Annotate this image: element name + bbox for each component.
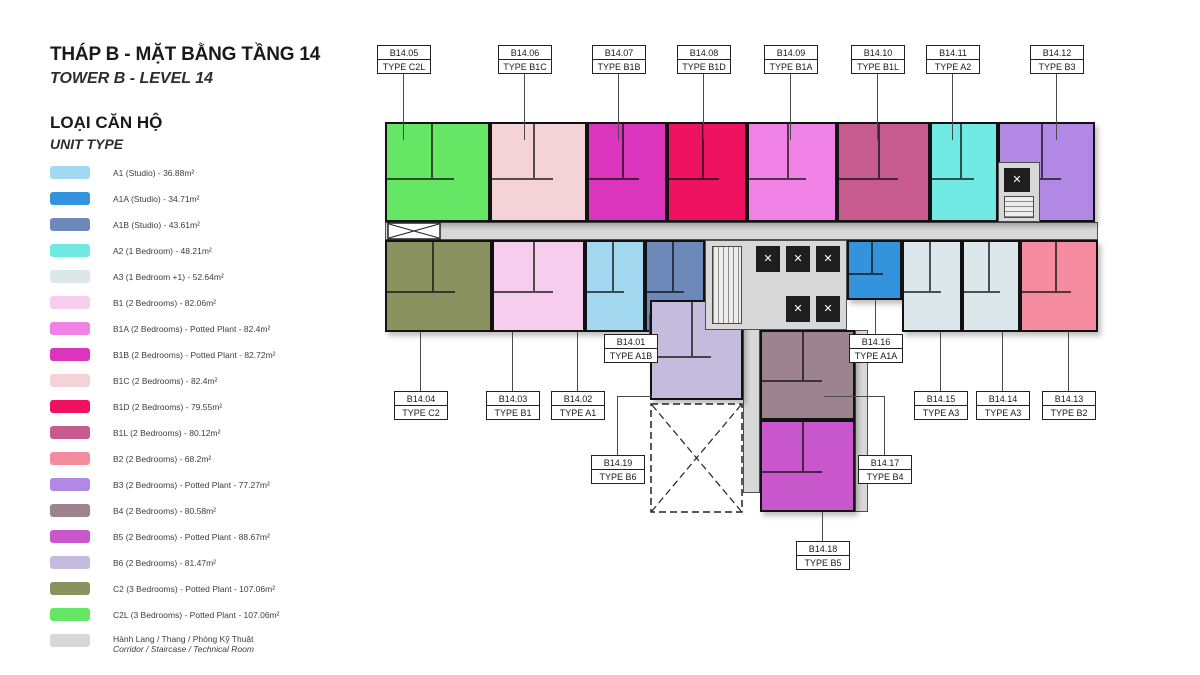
unit-area-B14.15 xyxy=(902,240,962,332)
unit-type: TYPE C2 xyxy=(395,406,447,419)
unit-type: TYPE A2 xyxy=(927,60,979,73)
elevator-shaft: ✕ xyxy=(816,296,840,322)
callout-B14.06: B14.06TYPE B1C xyxy=(498,45,552,74)
leader-line xyxy=(512,332,513,391)
unit-id: B14.05 xyxy=(378,46,430,60)
legend-item-corridor: Hành Lang / Thang / Phòng Kỹ Thuật Corri… xyxy=(50,634,279,656)
legend-swatch-A3 xyxy=(50,270,90,283)
leader-line xyxy=(940,332,941,391)
legend-swatch-corridor xyxy=(50,634,90,647)
callout-B14.15: B14.15TYPE A3 xyxy=(914,391,968,420)
callout-B14.17: B14.17TYPE B4 xyxy=(858,455,912,484)
legend-swatch-B1B xyxy=(50,348,90,361)
unit-type: TYPE A3 xyxy=(977,406,1029,419)
legend-label: B4 (2 Bedrooms) - 80.58m² xyxy=(113,506,216,516)
legend-item: A2 (1 Bedroom) - 48.21m² xyxy=(50,244,279,257)
legend-item: A1A (Studio) - 34.71m² xyxy=(50,192,279,205)
leader-line xyxy=(649,314,650,334)
unit-area-B14.04 xyxy=(385,240,492,332)
legend-label-en: Corridor / Staircase / Technical Room xyxy=(113,644,254,654)
legend-label: A2 (1 Bedroom) - 48.21m² xyxy=(113,246,212,256)
unit-id: B14.18 xyxy=(797,542,849,556)
unit-type: TYPE A1A xyxy=(850,349,902,362)
legend-label: A1B (Studio) - 43.61m² xyxy=(113,220,200,230)
legend-label: B1A (2 Bedrooms) - Potted Plant - 82.4m² xyxy=(113,324,270,334)
unit-id: B14.11 xyxy=(927,46,979,60)
callout-B14.19: B14.19TYPE B6 xyxy=(591,455,645,484)
leader-line xyxy=(524,69,525,140)
unit-type: TYPE B1B xyxy=(593,60,645,73)
legend-item: B1D (2 Bedrooms) - 79.55m² xyxy=(50,400,279,413)
leader-line xyxy=(952,69,953,140)
callout-B14.16: B14.16TYPE A1A xyxy=(849,334,903,363)
unit-area-B14.02 xyxy=(585,240,645,332)
legend-item: B1B (2 Bedrooms) - Potted Plant - 82.72m… xyxy=(50,348,279,361)
legend-item: A3 (1 Bedroom +1) - 52.64m² xyxy=(50,270,279,283)
legend-swatch-B1C xyxy=(50,374,90,387)
legend-item: B4 (2 Bedrooms) - 80.58m² xyxy=(50,504,279,517)
leader-line xyxy=(1068,332,1069,391)
legend-swatch-B2 xyxy=(50,452,90,465)
legend-label: C2 (3 Bedrooms) - Potted Plant - 107.06m… xyxy=(113,584,275,594)
legend-label: B5 (2 Bedrooms) - Potted Plant - 88.67m² xyxy=(113,532,270,542)
legend-item: B6 (2 Bedrooms) - 81.47m² xyxy=(50,556,279,569)
callout-B14.01: B14.01TYPE A1B xyxy=(604,334,658,363)
unit-area-B14.13 xyxy=(1020,240,1098,332)
legend-swatch-B3 xyxy=(50,478,90,491)
callout-B14.11: B14.11TYPE A2 xyxy=(926,45,980,74)
elevator-shaft: ✕ xyxy=(816,246,840,272)
legend-label: B3 (2 Bedrooms) - Potted Plant - 77.27m² xyxy=(113,480,270,490)
unit-type: TYPE A1 xyxy=(552,406,604,419)
legend-item: B2 (2 Bedrooms) - 68.2m² xyxy=(50,452,279,465)
staircase xyxy=(1004,196,1034,218)
unit-id: B14.10 xyxy=(852,46,904,60)
leader-line xyxy=(884,396,885,455)
legend-label: B1D (2 Bedrooms) - 79.55m² xyxy=(113,402,222,412)
legend-swatch-C2 xyxy=(50,582,90,595)
leader-line xyxy=(618,69,619,140)
unit-type: TYPE B6 xyxy=(592,470,644,483)
leader-line xyxy=(577,332,578,391)
unit-type: TYPE B2 xyxy=(1043,406,1095,419)
legend-item: B1 (2 Bedrooms) - 82.06m² xyxy=(50,296,279,309)
legend-label: A1 (Studio) - 36.88m² xyxy=(113,168,194,178)
unit-type: TYPE B1L xyxy=(852,60,904,73)
unit-id: B14.08 xyxy=(678,46,730,60)
legend-swatch-B4 xyxy=(50,504,90,517)
legend-item: A1B (Studio) - 43.61m² xyxy=(50,218,279,231)
legend-label: B6 (2 Bedrooms) - 81.47m² xyxy=(113,558,216,568)
unit-id: B14.15 xyxy=(915,392,967,406)
callout-B14.13: B14.13TYPE B2 xyxy=(1042,391,1096,420)
unit-type: TYPE B5 xyxy=(797,556,849,569)
legend-swatch-B6 xyxy=(50,556,90,569)
elevator-shaft: ✕ xyxy=(786,246,810,272)
leader-line xyxy=(875,300,876,334)
unit-id: B14.19 xyxy=(592,456,644,470)
unit-type: TYPE B4 xyxy=(859,470,911,483)
unit-type: TYPE A1B xyxy=(605,349,657,362)
leader-line xyxy=(1056,69,1057,140)
legend-swatch-A1 xyxy=(50,166,90,179)
legend-item: A1 (Studio) - 36.88m² xyxy=(50,166,279,179)
elevator-shaft: ✕ xyxy=(786,296,810,322)
legend-label: C2L (3 Bedrooms) - Potted Plant - 107.06… xyxy=(113,610,279,620)
legend-item: B1L (2 Bedrooms) - 80.12m² xyxy=(50,426,279,439)
unit-type: TYPE B1 xyxy=(487,406,539,419)
leader-line xyxy=(824,396,884,397)
leader-line xyxy=(403,69,404,140)
title-block: THÁP B - MẶT BẰNG TẦNG 14 TOWER B - LEVE… xyxy=(50,44,320,88)
unit-id: B14.03 xyxy=(487,392,539,406)
unit-id: B14.06 xyxy=(499,46,551,60)
unit-type-legend: A1 (Studio) - 36.88m² A1A (Studio) - 34.… xyxy=(50,166,279,669)
legend-label: Hành Lang / Thang / Phòng Kỹ Thuật Corri… xyxy=(113,634,254,654)
unit-area-B14.05 xyxy=(385,122,490,222)
unit-id: B14.04 xyxy=(395,392,447,406)
leader-line xyxy=(703,69,704,140)
unit-type: TYPE B1C xyxy=(499,60,551,73)
unit-area-B14.18 xyxy=(760,420,855,512)
unit-area-B14.17 xyxy=(760,330,855,420)
callout-B14.02: B14.02TYPE A1 xyxy=(551,391,605,420)
legend-label: B1 (2 Bedrooms) - 82.06m² xyxy=(113,298,216,308)
legend-item: C2 (3 Bedrooms) - Potted Plant - 107.06m… xyxy=(50,582,279,595)
leader-line xyxy=(877,69,878,140)
legend-label-vi: Hành Lang / Thang / Phòng Kỹ Thuật xyxy=(113,634,254,644)
legend-swatch-A1A xyxy=(50,192,90,205)
unit-type: TYPE B1D xyxy=(678,60,730,73)
unit-id: B14.13 xyxy=(1043,392,1095,406)
unit-type: TYPE B3 xyxy=(1031,60,1083,73)
elevator-shaft: ✕ xyxy=(756,246,780,272)
legend-item: B1A (2 Bedrooms) - Potted Plant - 82.4m² xyxy=(50,322,279,335)
legend-title-en: UNIT TYPE xyxy=(50,136,162,152)
elevator-shaft: ✕ xyxy=(1004,168,1030,192)
callout-B14.18: B14.18TYPE B5 xyxy=(796,541,850,570)
unit-id: B14.02 xyxy=(552,392,604,406)
legend-swatch-B1D xyxy=(50,400,90,413)
legend-label: B1L (2 Bedrooms) - 80.12m² xyxy=(113,428,220,438)
unit-area-B14.09 xyxy=(747,122,837,222)
legend-label: A1A (Studio) - 34.71m² xyxy=(113,194,199,204)
legend-swatch-B1L xyxy=(50,426,90,439)
unit-type: TYPE B1A xyxy=(765,60,817,73)
unit-type: TYPE C2L xyxy=(378,60,430,73)
void-area-x xyxy=(650,403,743,513)
legend-swatch-B5 xyxy=(50,530,90,543)
unit-id: B14.12 xyxy=(1031,46,1083,60)
leader-line xyxy=(617,396,618,455)
unit-id: B14.07 xyxy=(593,46,645,60)
unit-area-B14.10 xyxy=(837,122,930,222)
leader-line xyxy=(1002,332,1003,391)
legend-item: B3 (2 Bedrooms) - Potted Plant - 77.27m² xyxy=(50,478,279,491)
callout-B14.07: B14.07TYPE B1B xyxy=(592,45,646,74)
legend-swatch-B1A xyxy=(50,322,90,335)
leader-line xyxy=(617,396,652,397)
unit-id: B14.16 xyxy=(850,335,902,349)
main-corridor xyxy=(385,222,1098,240)
leader-line xyxy=(790,69,791,140)
leader-line xyxy=(420,332,421,391)
callout-B14.05: B14.05TYPE C2L xyxy=(377,45,431,74)
callout-B14.12: B14.12TYPE B3 xyxy=(1030,45,1084,74)
legend-item: B5 (2 Bedrooms) - Potted Plant - 88.67m² xyxy=(50,530,279,543)
unit-id: B14.09 xyxy=(765,46,817,60)
unit-area-B14.08 xyxy=(667,122,747,222)
legend-label: B2 (2 Bedrooms) - 68.2m² xyxy=(113,454,211,464)
legend-item: C2L (3 Bedrooms) - Potted Plant - 107.06… xyxy=(50,608,279,621)
unit-id: B14.14 xyxy=(977,392,1029,406)
page-title-vi: THÁP B - MẶT BẰNG TẦNG 14 xyxy=(50,44,320,66)
void-area-x xyxy=(387,222,441,240)
unit-area-B14.06 xyxy=(490,122,587,222)
unit-id: B14.17 xyxy=(859,456,911,470)
page-title-en: TOWER B - LEVEL 14 xyxy=(50,70,320,88)
legend-swatch-A2 xyxy=(50,244,90,257)
callout-B14.09: B14.09TYPE B1A xyxy=(764,45,818,74)
legend-swatch-A1B xyxy=(50,218,90,231)
unit-area-B14.16 xyxy=(847,240,902,300)
legend-title-vi: LOẠI CĂN HỘ xyxy=(50,113,162,133)
legend-label: B1C (2 Bedrooms) - 82.4m² xyxy=(113,376,217,386)
legend-title-block: LOẠI CĂN HỘ UNIT TYPE xyxy=(50,113,162,152)
unit-area-B14.03 xyxy=(492,240,585,332)
callout-B14.08: B14.08TYPE B1D xyxy=(677,45,731,74)
callout-B14.04: B14.04TYPE C2 xyxy=(394,391,448,420)
legend-swatch-C2L xyxy=(50,608,90,621)
unit-area-B14.14 xyxy=(962,240,1020,332)
callout-B14.03: B14.03TYPE B1 xyxy=(486,391,540,420)
unit-area-B14.07 xyxy=(587,122,667,222)
callout-B14.14: B14.14TYPE A3 xyxy=(976,391,1030,420)
unit-id: B14.01 xyxy=(605,335,657,349)
floorplan-page: { "header": { "title_vi": "THÁP B - MẶT … xyxy=(0,0,1200,675)
unit-type: TYPE A3 xyxy=(915,406,967,419)
legend-swatch-B1 xyxy=(50,296,90,309)
unit-area-B14.11 xyxy=(930,122,998,222)
callout-B14.10: B14.10TYPE B1L xyxy=(851,45,905,74)
legend-item: B1C (2 Bedrooms) - 82.4m² xyxy=(50,374,279,387)
leader-line xyxy=(822,512,823,541)
legend-label: A3 (1 Bedroom +1) - 52.64m² xyxy=(113,272,224,282)
staircase xyxy=(712,246,742,324)
legend-label: B1B (2 Bedrooms) - Potted Plant - 82.72m… xyxy=(113,350,276,360)
